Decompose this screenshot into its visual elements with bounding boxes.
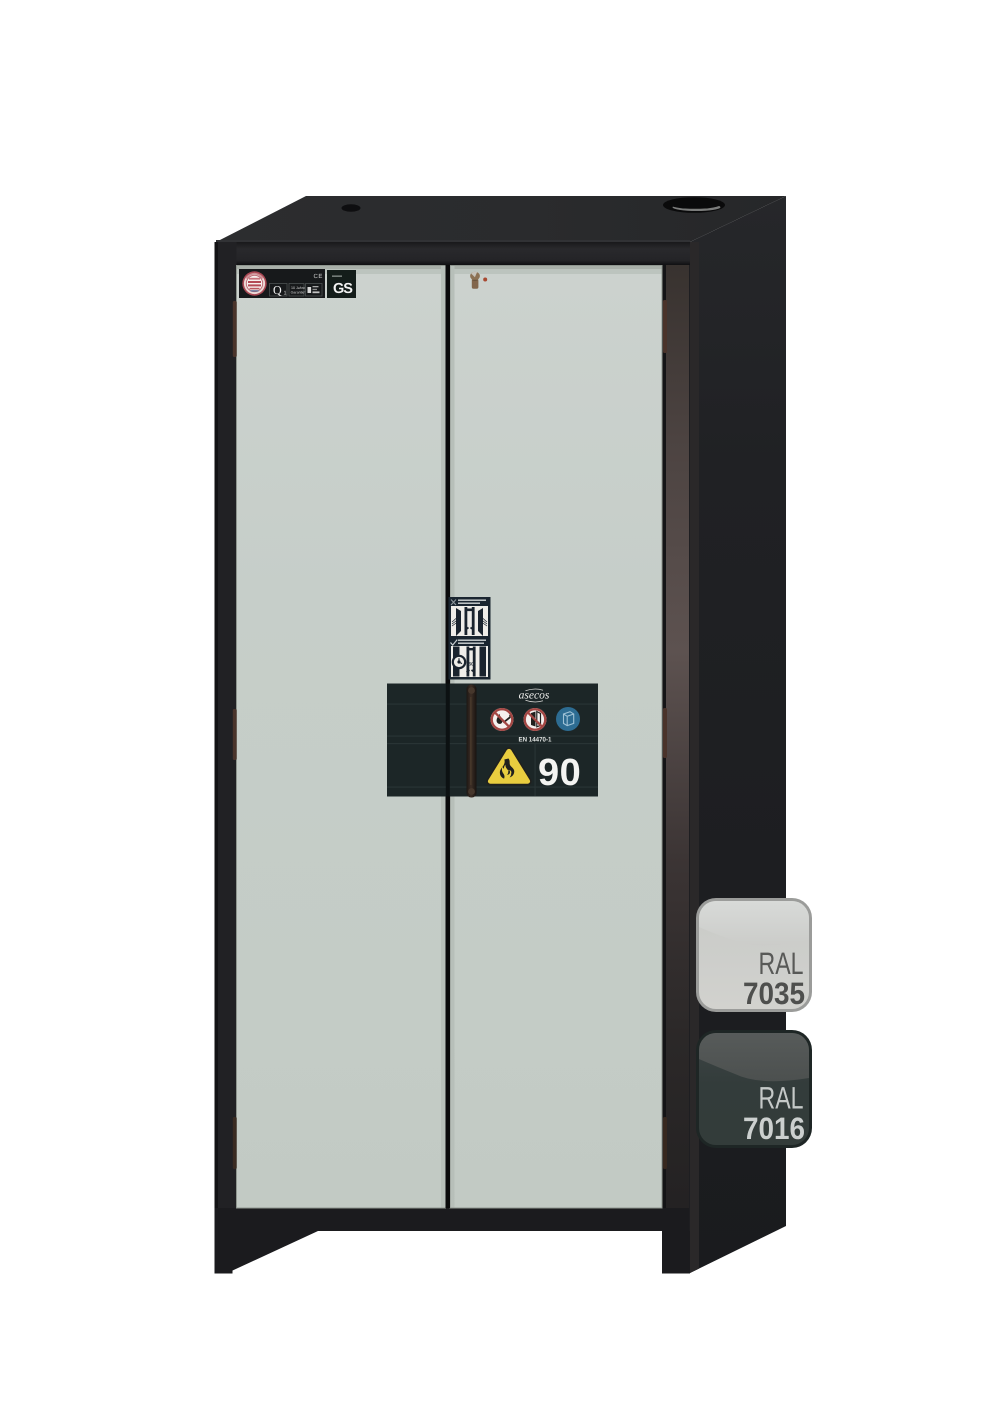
svg-text:1: 1: [284, 291, 287, 297]
svg-text:10 Jahre: 10 Jahre: [291, 286, 305, 290]
svg-text:60: 60: [469, 662, 475, 668]
svg-text:asecos: asecos: [519, 690, 550, 702]
svg-text:Garantie*: Garantie*: [291, 291, 307, 295]
svg-text:90: 90: [538, 752, 581, 794]
svg-text:EN 14470-1: EN 14470-1: [519, 737, 552, 744]
svg-text:Q: Q: [273, 283, 282, 297]
svg-text:GS: GS: [333, 281, 353, 297]
svg-text:7035: 7035: [743, 976, 805, 1011]
svg-text:CE: CE: [314, 273, 324, 280]
svg-text:7016: 7016: [743, 1111, 805, 1146]
